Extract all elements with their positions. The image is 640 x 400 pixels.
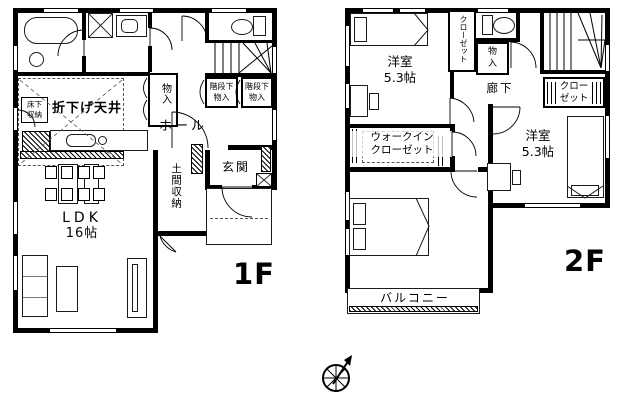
doors-1f [18,16,252,252]
ceiling-cross [20,80,122,164]
plan-linework [0,0,640,400]
stairs-1f [215,43,272,73]
stairs-2f [550,13,605,70]
floor-plan-canvas: 床下収納 折下げ天井 物入 階段下物入 階段下物入 ホール 玄関 土間収納 LD… [0,0,640,400]
bed-folds [414,13,603,256]
doors-2f [450,42,536,197]
compass-icon [323,355,352,391]
x-marks [89,14,271,186]
